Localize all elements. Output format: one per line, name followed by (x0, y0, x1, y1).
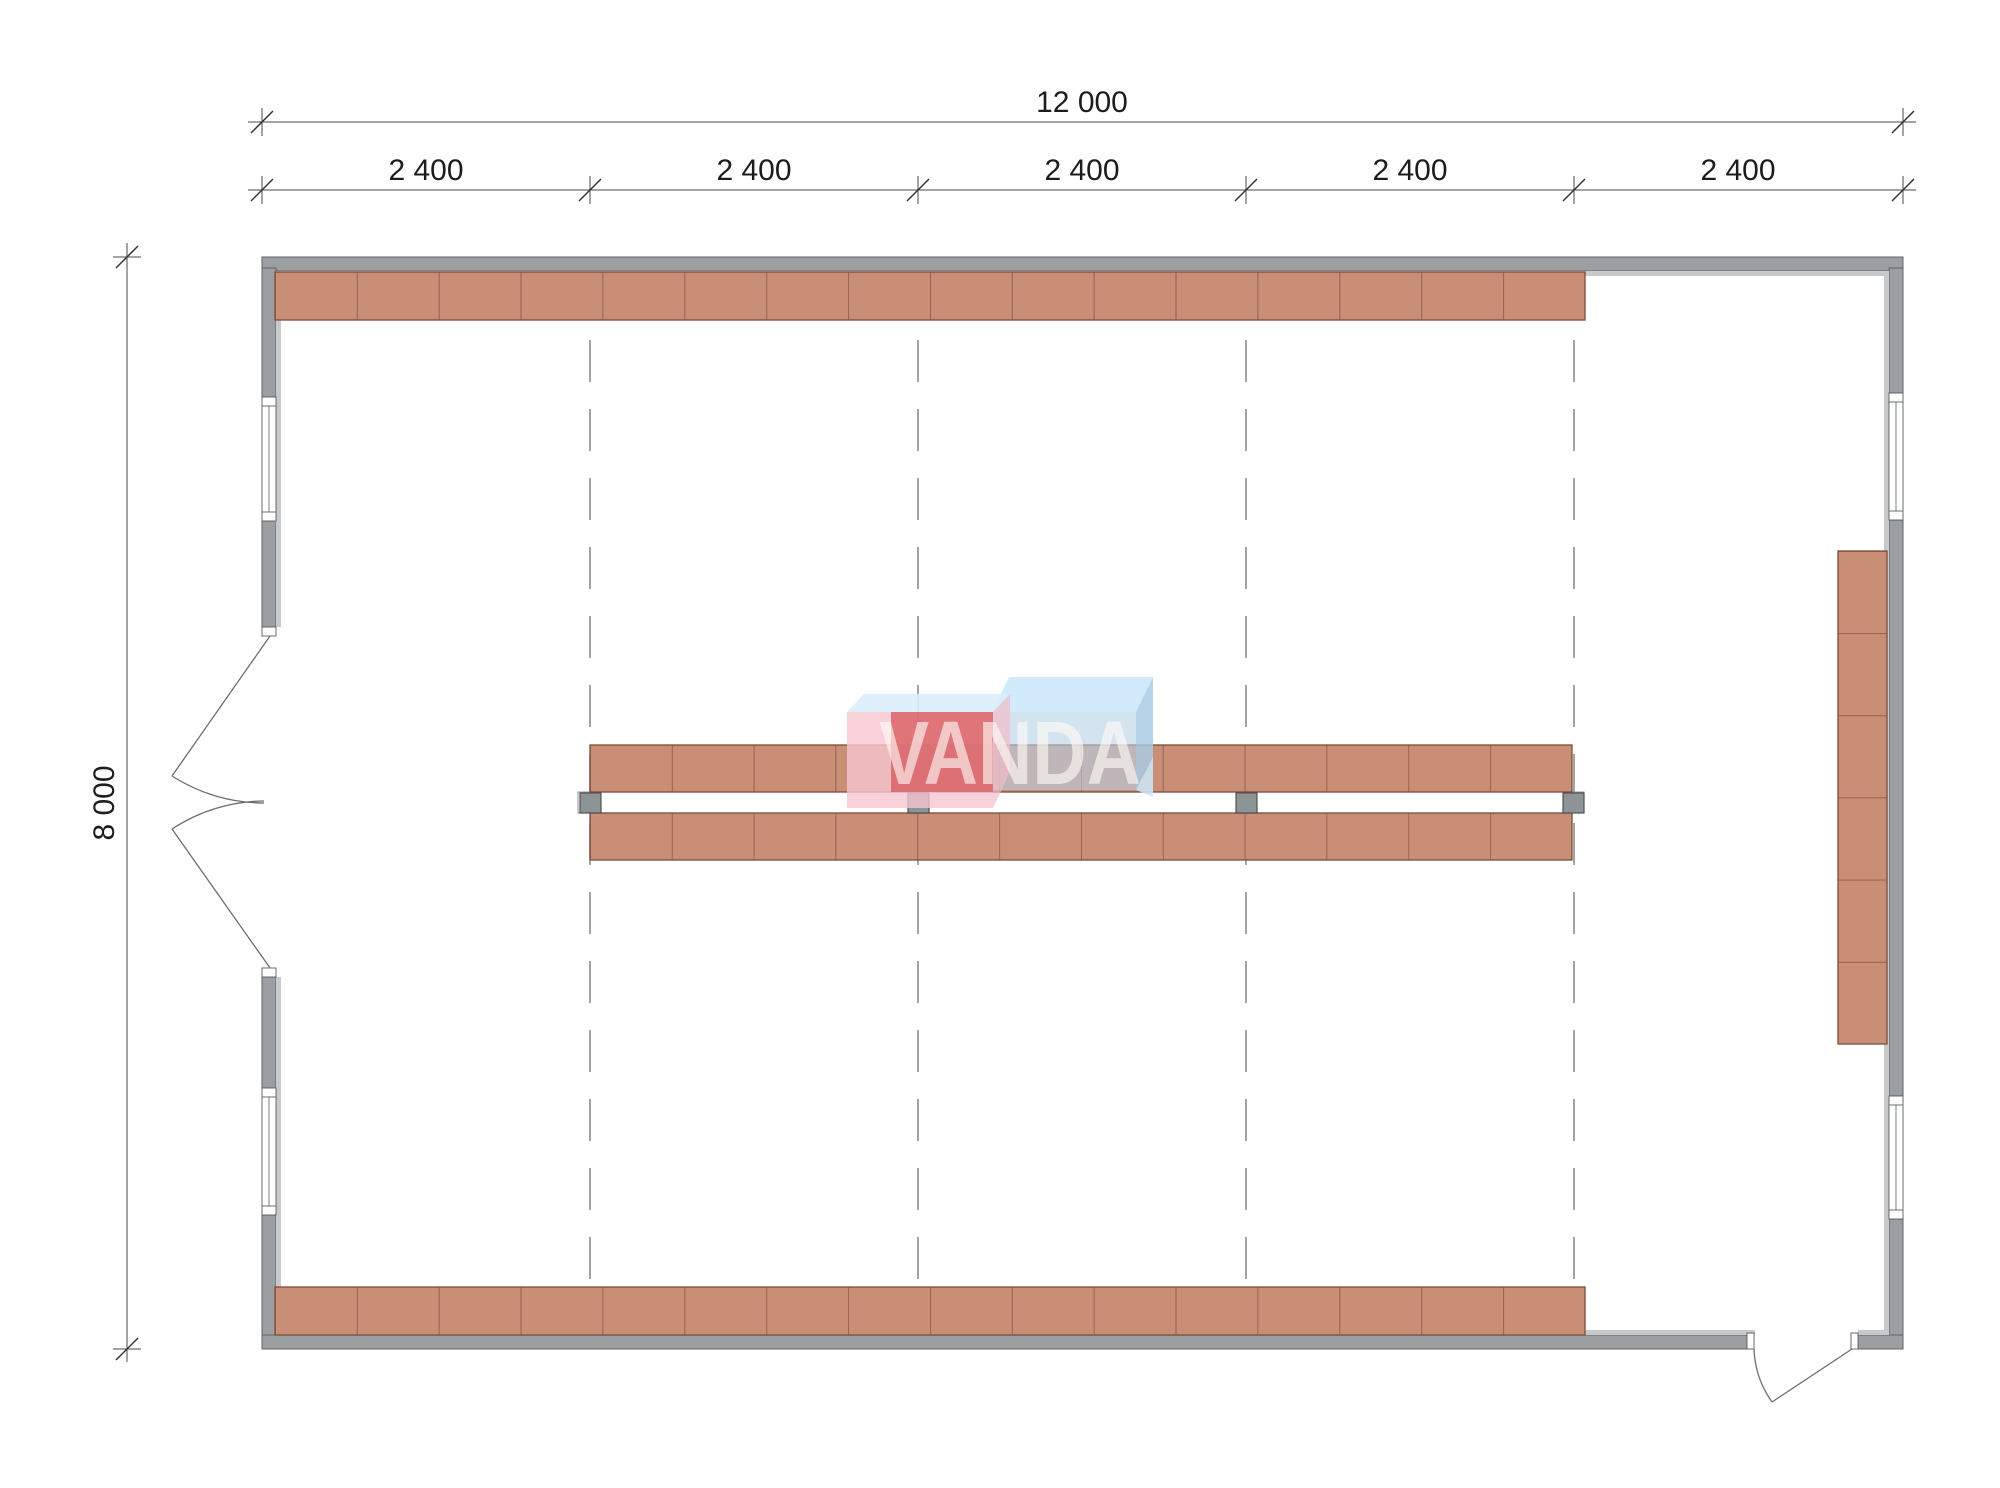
wall-lining-left (276, 271, 281, 627)
wall-right-segment (1889, 1219, 1903, 1349)
dim-label-total-height: 8 000 (88, 765, 121, 840)
wall-bottom-segment (1858, 1335, 1903, 1349)
dim-label-bay: 2 400 (1044, 154, 1119, 187)
wall-bottom-segment (262, 1335, 1748, 1349)
wall-lining-bottom (1858, 1330, 1889, 1335)
door-jamb (262, 627, 276, 636)
column (580, 793, 601, 813)
dim-label-total-width: 12 000 (1036, 86, 1128, 119)
dim-label-bay: 2 400 (716, 154, 791, 187)
window-right-lower (1889, 1096, 1903, 1219)
column (1236, 793, 1257, 813)
door-swing (1754, 1349, 1852, 1402)
floor-plan-page: 12 000 2 400 2 400 2 400 2 400 2 400 8 0… (0, 0, 2000, 1488)
floor-plan-canvas: 12 000 2 400 2 400 2 400 2 400 2 400 8 0… (0, 0, 2000, 1488)
door-jamb (1851, 1333, 1858, 1349)
door-left-double (172, 627, 276, 977)
wall-lining-left (276, 977, 281, 1330)
dim-label-bay: 2 400 (388, 154, 463, 187)
window-left-lower (262, 1088, 276, 1215)
shelf-row-top (275, 272, 1585, 320)
shelf-row-bottom (275, 1287, 1585, 1335)
wall-left-segment (262, 521, 276, 627)
door-jamb (262, 968, 276, 977)
window-right-upper (1889, 393, 1903, 520)
door-jamb (1747, 1333, 1754, 1349)
wall-right-segment (1889, 520, 1903, 1096)
watermark-text: VANDA (879, 704, 1141, 804)
dim-label-bay: 2 400 (1372, 154, 1447, 187)
wall-right-segment (1889, 268, 1903, 393)
watermark-logo: VANDA (847, 677, 1153, 808)
wall-top (262, 257, 1903, 271)
door-swing (172, 636, 270, 968)
window-left-upper (262, 397, 276, 521)
wall-left-segment (262, 268, 276, 397)
wall-left-segment (262, 977, 276, 1088)
dim-label-bay: 2 400 (1700, 154, 1775, 187)
shelf-row-center-bottom (590, 813, 1572, 860)
column (1563, 793, 1584, 813)
wall-left-segment (262, 1215, 276, 1349)
door-bottom-right (1747, 1333, 1858, 1402)
shelf-column-right-wall (1838, 551, 1887, 1044)
